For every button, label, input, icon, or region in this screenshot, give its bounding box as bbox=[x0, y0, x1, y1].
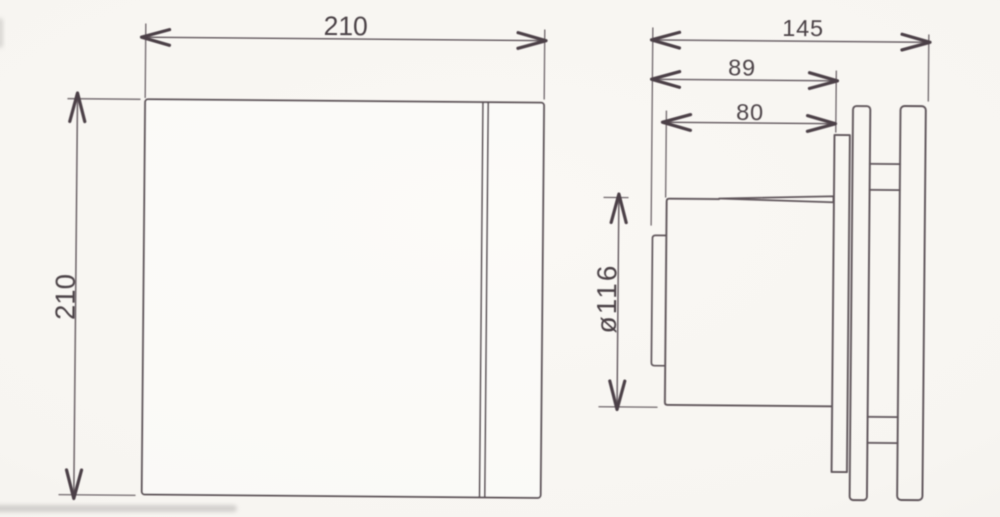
svg-text:ø116: ø116 bbox=[591, 264, 623, 334]
svg-text:80: 80 bbox=[736, 99, 764, 125]
svg-text:210: 210 bbox=[323, 11, 367, 41]
svg-text:145: 145 bbox=[782, 15, 824, 41]
svg-text:210: 210 bbox=[49, 274, 80, 320]
svg-text:89: 89 bbox=[728, 54, 756, 80]
